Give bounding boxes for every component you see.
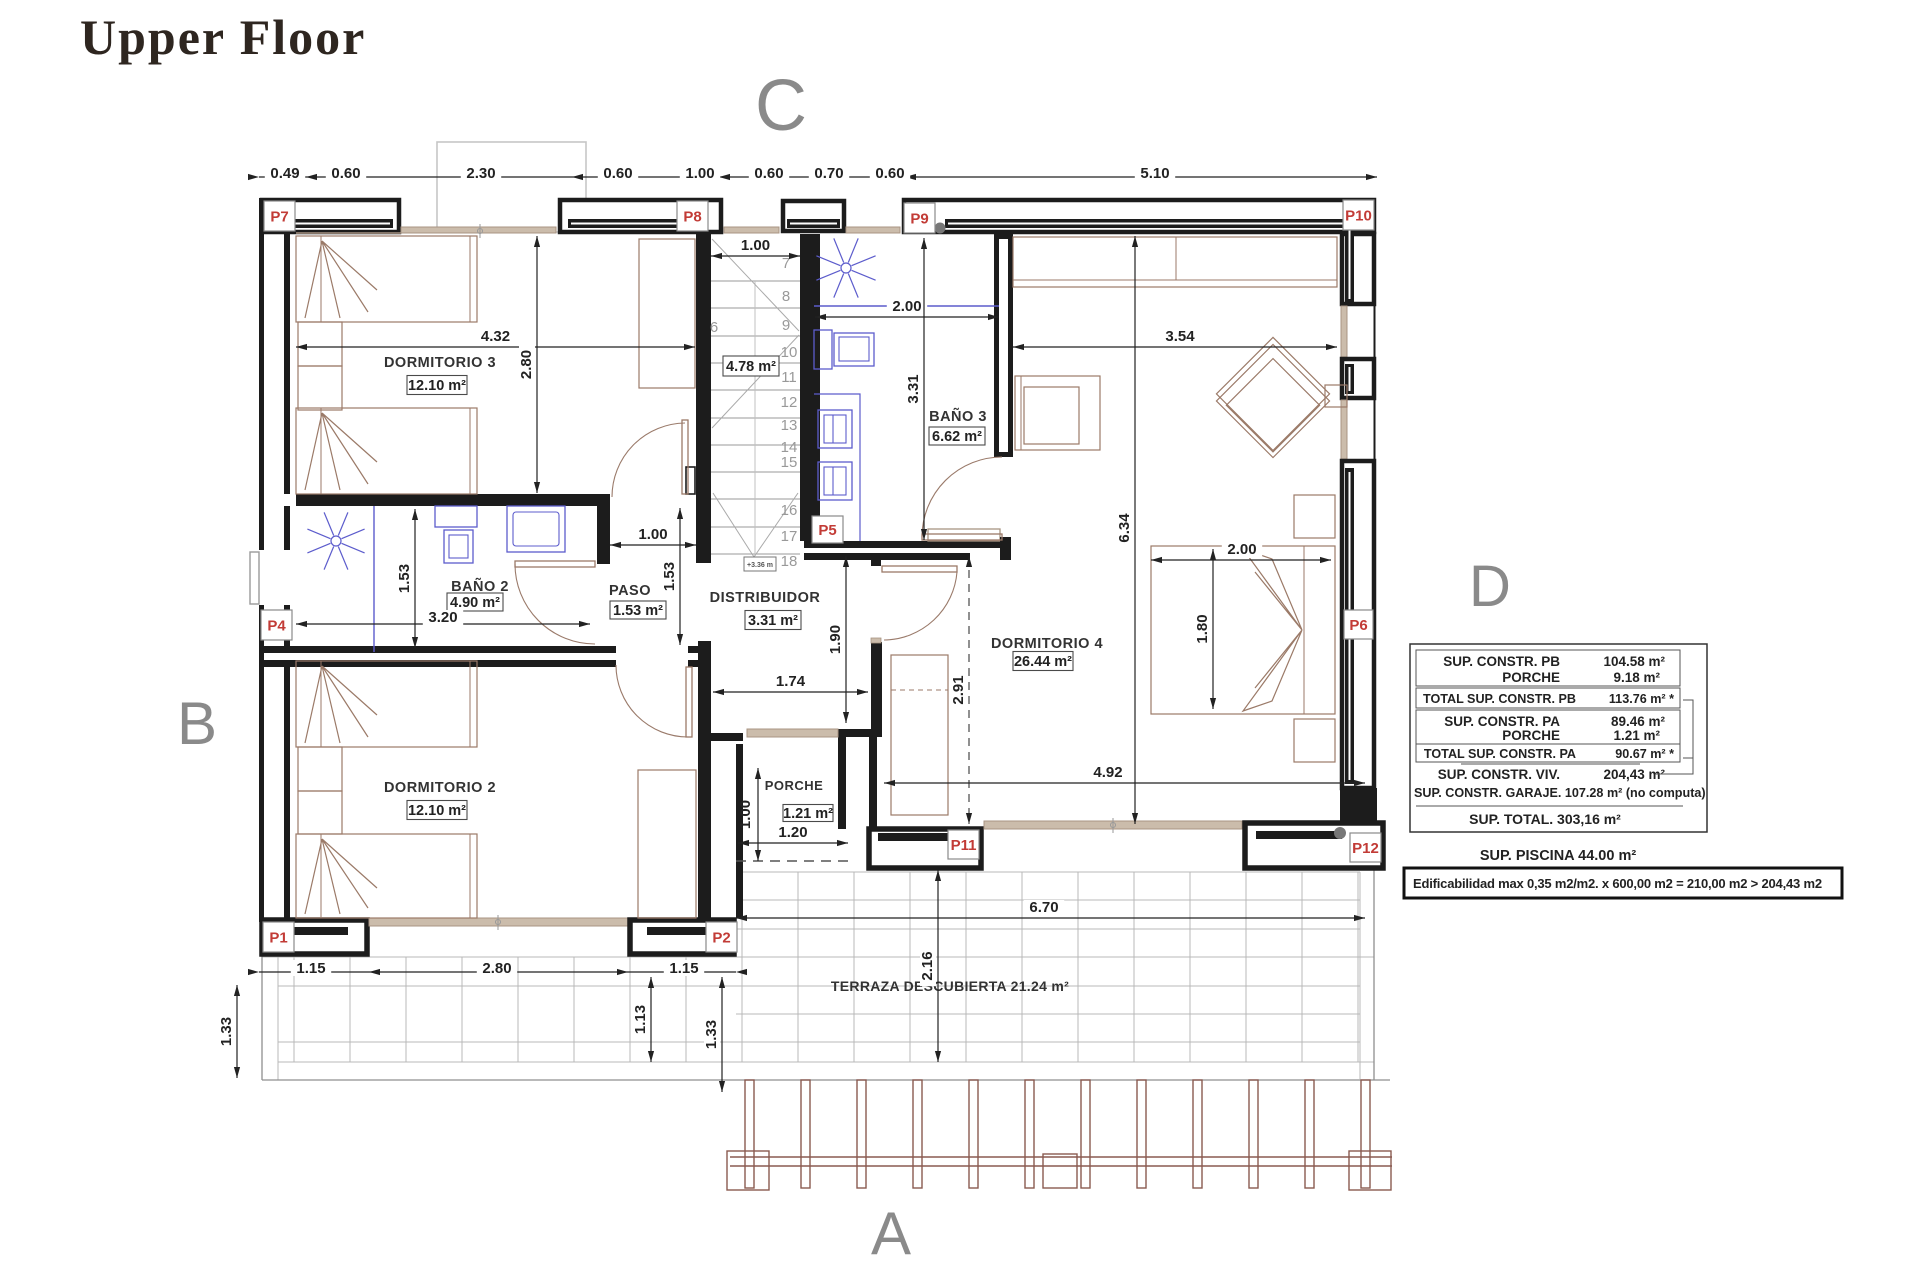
svg-text:PORCHE: PORCHE xyxy=(1502,728,1560,743)
svg-text:6.34: 6.34 xyxy=(1116,513,1133,543)
svg-text:7: 7 xyxy=(782,255,790,272)
svg-text:1.53 m²: 1.53 m² xyxy=(613,603,663,619)
svg-text:1.53: 1.53 xyxy=(396,564,413,593)
svg-text:TOTAL SUP. CONSTR. PB: TOTAL SUP. CONSTR. PB xyxy=(1423,692,1576,706)
svg-text:0.70: 0.70 xyxy=(814,165,843,182)
svg-text:2.00: 2.00 xyxy=(1227,541,1256,558)
svg-text:TOTAL SUP. CONSTR. PA: TOTAL SUP. CONSTR. PA xyxy=(1424,747,1576,761)
svg-text:6: 6 xyxy=(710,319,718,336)
svg-text:0.60: 0.60 xyxy=(603,165,632,182)
svg-text:SUP. CONSTR. VIV.: SUP. CONSTR. VIV. xyxy=(1438,767,1560,782)
svg-text:90.67 m² *: 90.67 m² * xyxy=(1615,747,1674,761)
svg-text:2.16: 2.16 xyxy=(919,951,936,980)
svg-text:SUP. CONSTR. PB: SUP. CONSTR. PB xyxy=(1443,654,1560,669)
svg-text:A: A xyxy=(871,1200,911,1267)
svg-text:SUP. CONSTR. PA: SUP. CONSTR. PA xyxy=(1444,714,1560,729)
svg-text:PASO: PASO xyxy=(609,583,651,599)
svg-text:Edificabilidad max 0,35 m2/m2.: Edificabilidad max 0,35 m2/m2. x 600,00 … xyxy=(1413,876,1822,891)
svg-text:9: 9 xyxy=(782,317,790,334)
svg-text:3.54: 3.54 xyxy=(1165,328,1195,345)
svg-text:0.60: 0.60 xyxy=(754,165,783,182)
svg-text:P4: P4 xyxy=(267,618,286,635)
svg-text:B: B xyxy=(177,690,217,757)
svg-text:15: 15 xyxy=(781,454,798,471)
svg-text:1.15: 1.15 xyxy=(669,960,698,977)
svg-text:P1: P1 xyxy=(269,930,287,947)
svg-text:0.60: 0.60 xyxy=(875,165,904,182)
svg-text:26.44 m²: 26.44 m² xyxy=(1014,654,1072,670)
svg-text:2.91: 2.91 xyxy=(950,675,967,704)
svg-text:BAÑO 3: BAÑO 3 xyxy=(929,407,987,425)
svg-text:1.00: 1.00 xyxy=(638,526,667,543)
svg-text:P11: P11 xyxy=(951,837,977,854)
svg-text:1.53: 1.53 xyxy=(661,562,678,591)
svg-text:2.80: 2.80 xyxy=(482,960,511,977)
svg-text:P7: P7 xyxy=(270,209,288,226)
svg-text:DORMITORIO 3: DORMITORIO 3 xyxy=(384,355,496,371)
svg-text:113.76 m² *: 113.76 m² * xyxy=(1609,692,1674,706)
svg-text:PORCHE: PORCHE xyxy=(765,778,824,793)
svg-text:2.30: 2.30 xyxy=(466,165,495,182)
svg-text:1.00: 1.00 xyxy=(685,165,714,182)
svg-text:3.31 m²: 3.31 m² xyxy=(748,613,798,629)
svg-text:P2: P2 xyxy=(712,930,730,947)
svg-text:4.92: 4.92 xyxy=(1093,764,1122,781)
svg-text:SUP. PISCINA 44.00 m²: SUP. PISCINA 44.00 m² xyxy=(1480,848,1637,864)
svg-text:0.60: 0.60 xyxy=(331,165,360,182)
svg-text:2.00: 2.00 xyxy=(892,298,921,315)
svg-text:104.58 m²: 104.58 m² xyxy=(1603,654,1665,669)
svg-text:1.20: 1.20 xyxy=(778,824,807,841)
svg-text:1.00: 1.00 xyxy=(741,237,770,254)
svg-text:P5: P5 xyxy=(818,522,836,539)
svg-text:C: C xyxy=(755,66,807,146)
svg-text:1.33: 1.33 xyxy=(703,1020,720,1049)
svg-text:+3.36 m: +3.36 m xyxy=(747,562,773,569)
svg-text:89.46 m²: 89.46 m² xyxy=(1611,714,1666,729)
svg-text:18: 18 xyxy=(781,553,798,570)
svg-text:P6: P6 xyxy=(1349,617,1367,634)
svg-text:1.13: 1.13 xyxy=(632,1005,649,1034)
svg-text:4.32: 4.32 xyxy=(481,328,510,345)
svg-text:8: 8 xyxy=(782,288,790,305)
svg-text:12: 12 xyxy=(781,394,798,411)
svg-text:5.10: 5.10 xyxy=(1140,165,1169,182)
svg-text:9.18 m²: 9.18 m² xyxy=(1613,670,1660,685)
svg-text:1.90: 1.90 xyxy=(827,625,844,654)
svg-text:D: D xyxy=(1469,554,1511,619)
svg-text:1.21 m²: 1.21 m² xyxy=(783,806,833,822)
svg-text:P9: P9 xyxy=(910,211,928,228)
svg-text:1.80: 1.80 xyxy=(1194,614,1211,643)
svg-text:6.62 m²: 6.62 m² xyxy=(932,429,982,445)
svg-text:DORMITORIO 2: DORMITORIO 2 xyxy=(384,780,496,796)
svg-text:6.70: 6.70 xyxy=(1029,899,1058,916)
svg-text:P12: P12 xyxy=(1352,840,1379,857)
svg-text:1.15: 1.15 xyxy=(296,960,325,977)
svg-text:P10: P10 xyxy=(1345,208,1372,225)
svg-text:Upper Floor: Upper Floor xyxy=(80,9,366,65)
svg-text:PORCHE: PORCHE xyxy=(1502,670,1560,685)
svg-text:10: 10 xyxy=(781,344,798,361)
svg-text:SUP. TOTAL. 303,16 m²: SUP. TOTAL. 303,16 m² xyxy=(1469,811,1621,827)
svg-text:11: 11 xyxy=(781,369,797,386)
svg-text:BAÑO 2: BAÑO 2 xyxy=(451,577,509,595)
svg-text:3.31: 3.31 xyxy=(905,374,922,403)
svg-text:4.78 m²: 4.78 m² xyxy=(726,359,776,375)
svg-text:12.10 m²: 12.10 m² xyxy=(408,803,466,819)
svg-text:1.33: 1.33 xyxy=(218,1017,235,1046)
svg-text:3.20: 3.20 xyxy=(428,609,457,626)
svg-text:TERRAZA DESCUBIERTA 21.24 m²: TERRAZA DESCUBIERTA 21.24 m² xyxy=(831,978,1069,994)
svg-text:DORMITORIO 4: DORMITORIO 4 xyxy=(991,636,1103,652)
svg-text:1.21 m²: 1.21 m² xyxy=(1613,728,1660,743)
svg-text:P8: P8 xyxy=(683,209,701,226)
svg-text:1.00: 1.00 xyxy=(737,800,754,829)
svg-text:2.80: 2.80 xyxy=(518,350,535,379)
svg-text:13: 13 xyxy=(781,417,798,434)
svg-text:SUP. CONSTR. GARAJE. 107.28 m²: SUP. CONSTR. GARAJE. 107.28 m² (no compu… xyxy=(1414,786,1706,800)
svg-text:0.49: 0.49 xyxy=(270,165,299,182)
svg-text:DISTRIBUIDOR: DISTRIBUIDOR xyxy=(710,590,821,606)
svg-text:17: 17 xyxy=(781,528,798,545)
svg-text:1.74: 1.74 xyxy=(776,673,806,690)
svg-text:12.10 m²: 12.10 m² xyxy=(408,378,466,394)
svg-text:16: 16 xyxy=(781,502,798,519)
